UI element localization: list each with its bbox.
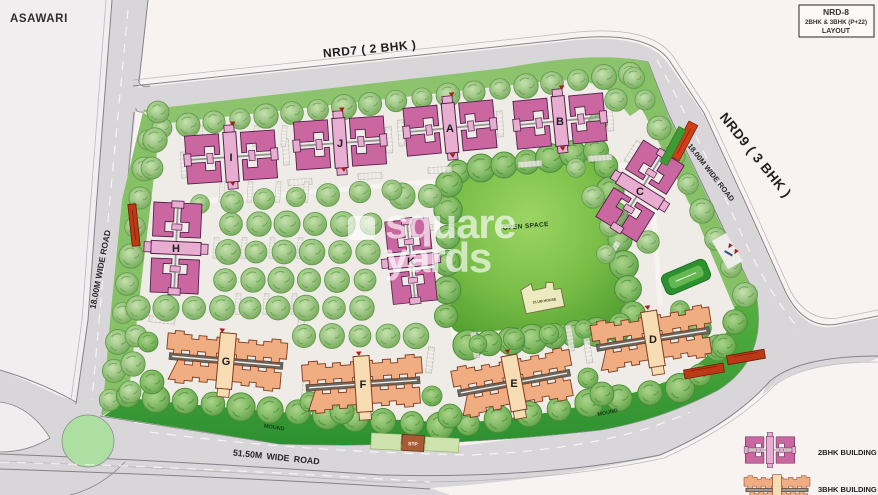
svg-text:3BHK BUILDING: 3BHK BUILDING — [818, 485, 877, 494]
svg-text:F: F — [360, 379, 367, 391]
svg-text:C: C — [636, 186, 644, 198]
svg-text:E: E — [510, 378, 517, 390]
svg-text:2BHK & 3BHK (P+22): 2BHK & 3BHK (P+22) — [805, 19, 867, 26]
svg-text:yards: yards — [385, 234, 491, 281]
svg-text:LAYOUT: LAYOUT — [822, 28, 851, 35]
svg-text:NRD-8: NRD-8 — [823, 7, 849, 17]
svg-text:A: A — [446, 123, 454, 135]
svg-text:2BHK BUILDING: 2BHK BUILDING — [818, 448, 877, 457]
svg-text:G: G — [222, 356, 231, 368]
svg-text:STP: STP — [408, 441, 419, 448]
svg-text:D: D — [649, 334, 657, 346]
svg-text:H: H — [172, 243, 180, 255]
svg-text:J: J — [337, 138, 343, 150]
svg-text:ASAWARI: ASAWARI — [10, 13, 68, 25]
svg-text:I: I — [229, 152, 232, 164]
svg-text:B: B — [556, 116, 564, 128]
